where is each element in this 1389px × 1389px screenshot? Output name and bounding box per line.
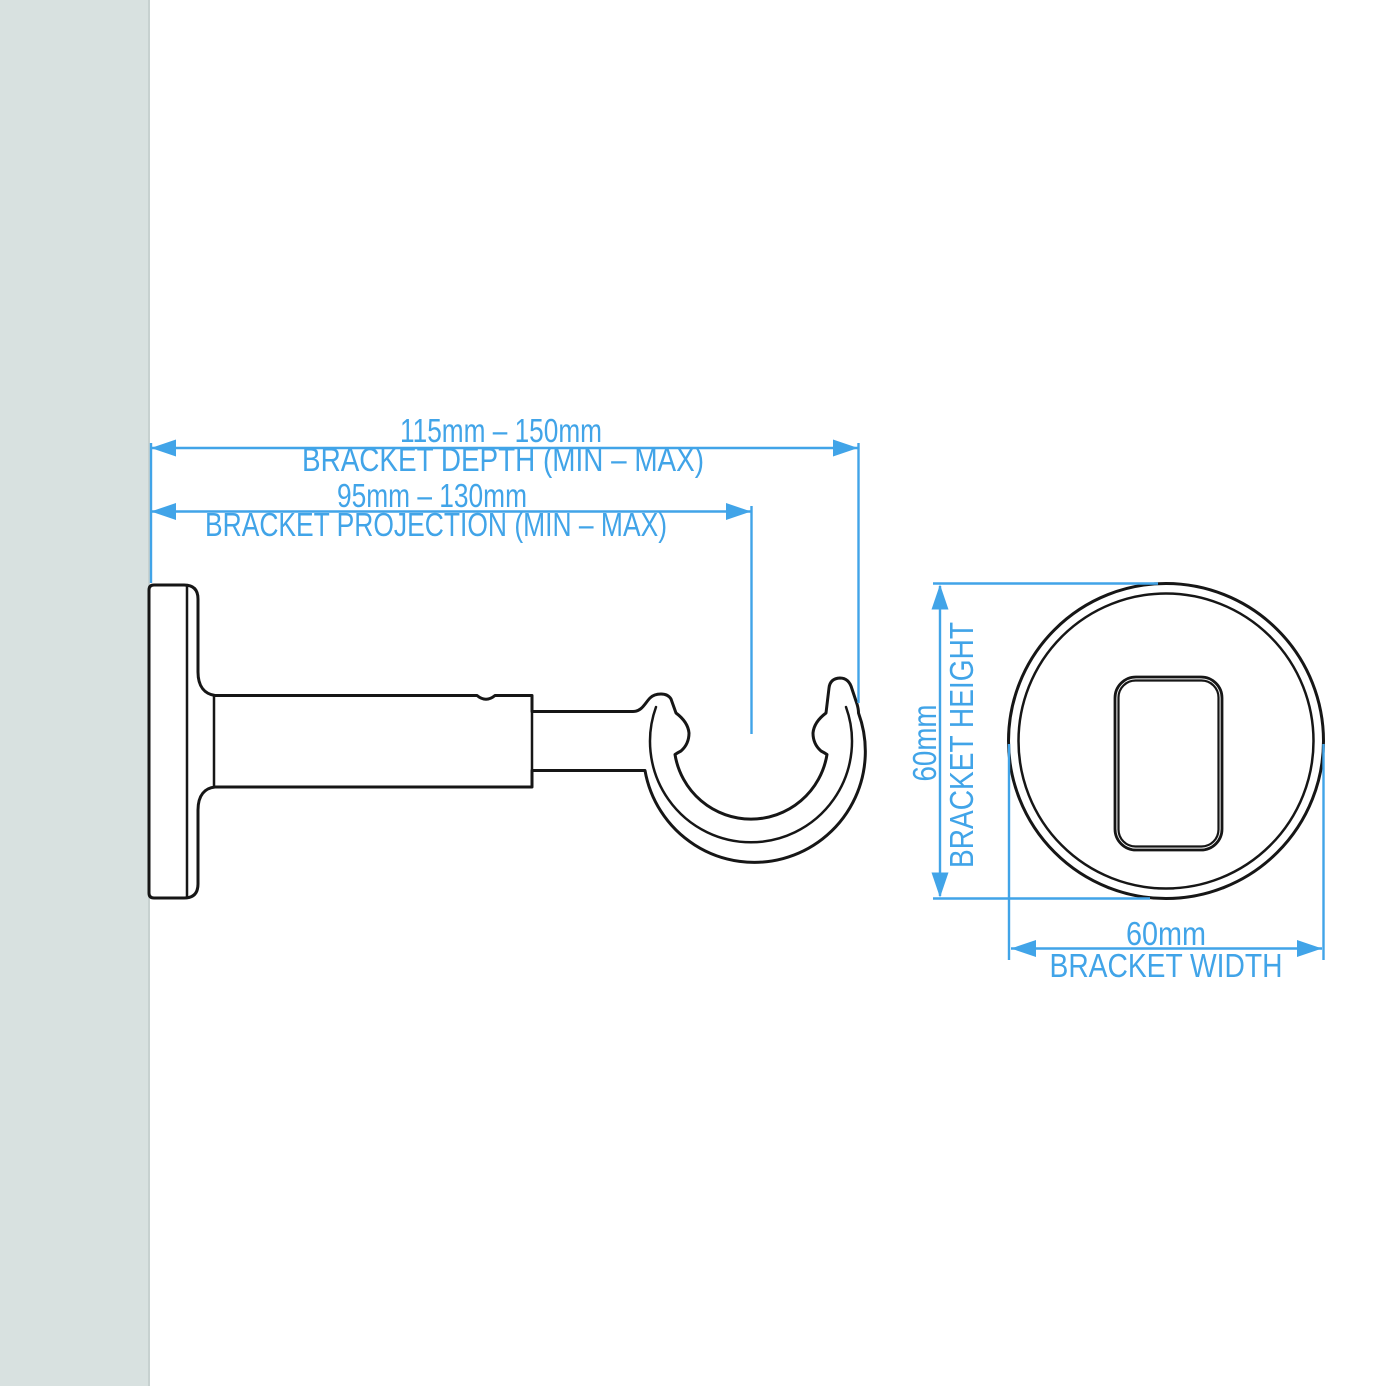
- side-view-drawing: [149, 585, 865, 898]
- height-text-label: BRACKET HEIGHT: [943, 622, 980, 868]
- projection-arrow-left: [151, 503, 176, 520]
- width-arrow-left: [1011, 940, 1036, 957]
- height-value-label: 60mm: [906, 705, 943, 782]
- bracket-side-silhouette: [149, 585, 865, 898]
- depth-text-label: BRACKET DEPTH (MIN – MAX): [302, 441, 704, 478]
- bracket-dimension-diagram: 115mm – 150mm BRACKET DEPTH (MIN – MAX) …: [0, 0, 1389, 1389]
- projection-text-label: BRACKET PROJECTION (MIN – MAX): [205, 506, 667, 543]
- width-arrow-right: [1297, 940, 1322, 957]
- bracket-face-inner-circle: [1019, 594, 1314, 889]
- depth-arrow-left: [151, 440, 176, 457]
- depth-arrow-right: [833, 440, 858, 457]
- center-slot-inner: [1119, 681, 1219, 847]
- center-slot-outer: [1115, 677, 1222, 850]
- projection-arrow-right: [726, 503, 751, 520]
- width-text-label: BRACKET WIDTH: [1050, 947, 1283, 984]
- height-arrow-top: [932, 585, 949, 610]
- height-arrow-bottom: [932, 873, 949, 898]
- technical-diagram-canvas: 115mm – 150mm BRACKET DEPTH (MIN – MAX) …: [0, 0, 1389, 1389]
- front-view-drawing: [1009, 584, 1324, 899]
